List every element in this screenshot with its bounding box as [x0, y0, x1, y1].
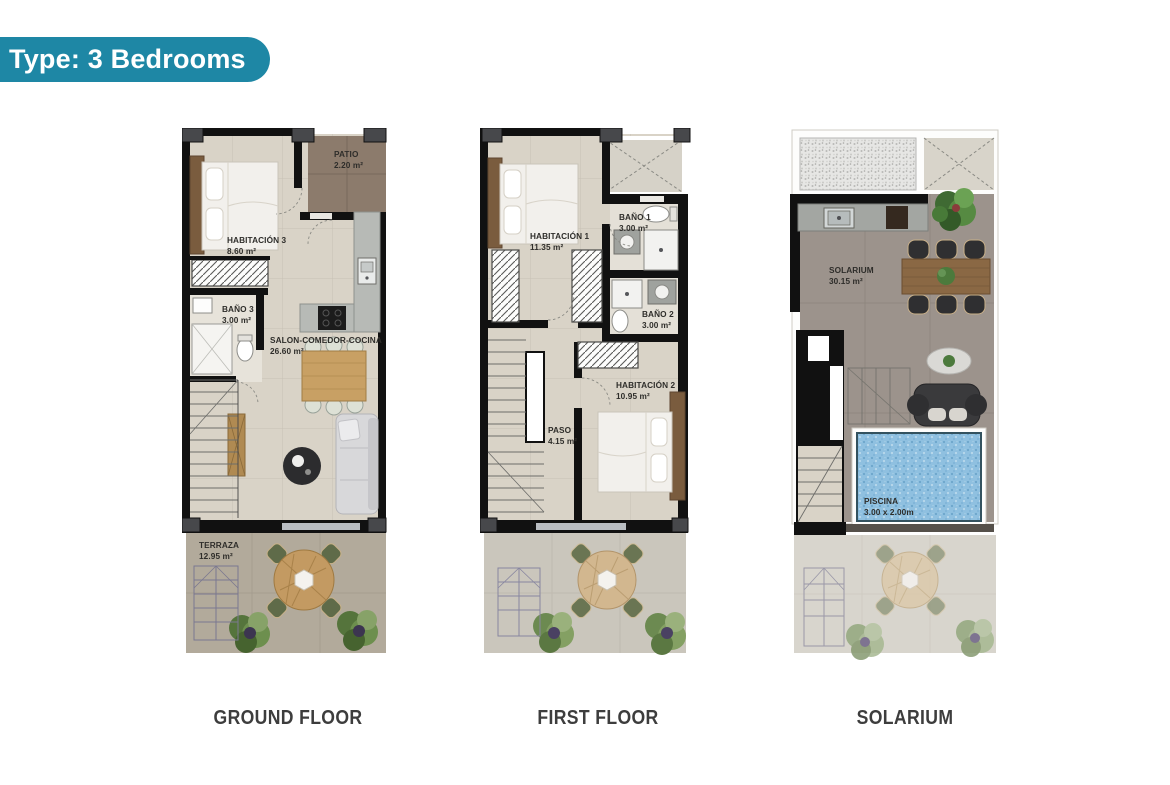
room-label-habitacion-1: HABITACIÓN 1 11.35 m²: [530, 231, 589, 253]
room-label-solarium: SOLARIUM 30.15 m²: [829, 265, 874, 287]
void-area: [602, 136, 686, 196]
terrace-table-icon: [265, 542, 343, 620]
dining-table-icon: [902, 240, 990, 314]
room-label-piscina: PISCINA 3.00 x 2.00m: [864, 496, 914, 518]
ground-floor-drawing: [182, 128, 391, 660]
first-floor-plan: HABITACIÓN 1 11.35 m² BAÑO 1 3.00 m² BAÑ…: [480, 128, 697, 660]
room-label-bano-2: BAÑO 2 3.00 m²: [642, 309, 674, 331]
bathroom-icons: [190, 288, 268, 382]
room-label-habitacion-2: HABITACIÓN 2 10.95 m²: [616, 380, 675, 402]
type-badge: Type: 3 Bedrooms: [0, 37, 270, 82]
solarium-drawing: [790, 128, 1002, 660]
room-label-terraza: TERRAZA 12.95 m²: [199, 540, 239, 562]
floorplan-sheet: Type: 3 Bedrooms: [0, 0, 1170, 785]
room-label-paso: PASO 4.15 m²: [548, 425, 577, 447]
floor-caption-ground: GROUND FLOOR: [195, 707, 382, 730]
wardrobe-icon: [190, 256, 270, 286]
type-badge-label: Type: 3 Bedrooms: [9, 44, 246, 75]
ground-floor-plan: HABITACIÓN 3 8.60 m² PATIO 2.20 m² BAÑO …: [182, 128, 391, 660]
room-label-habitacion-3: HABITACIÓN 3 8.60 m²: [227, 235, 286, 257]
patio-area: [308, 136, 386, 212]
room-label-salon: SALON-COMEDOR-COCINA 26.60 m²: [270, 335, 382, 357]
sofa-icon: [907, 384, 987, 426]
sofa-icon: [336, 414, 378, 514]
terrace-table-icon: [874, 543, 948, 618]
plant-icon: [846, 623, 884, 660]
floor-caption-solarium: SOLARIUM: [812, 707, 999, 730]
floor-caption-first: FIRST FLOOR: [505, 707, 692, 730]
terrace-table-icon: [569, 542, 645, 620]
void-area: [924, 138, 994, 190]
coffee-table-icon: [927, 348, 971, 374]
room-label-patio: PATIO 2.20 m²: [334, 149, 363, 171]
room-label-bano-1: BAÑO 1 3.00 m²: [619, 212, 651, 234]
solarium-plan: SOLARIUM 30.15 m² PISCINA 3.00 x 2.00m: [790, 128, 1002, 660]
coffee-table-icon: [283, 447, 321, 485]
console-table-icon: [228, 414, 245, 476]
gravel-area: [800, 138, 916, 190]
room-label-bano-3: BAÑO 3 3.00 m²: [222, 304, 254, 326]
